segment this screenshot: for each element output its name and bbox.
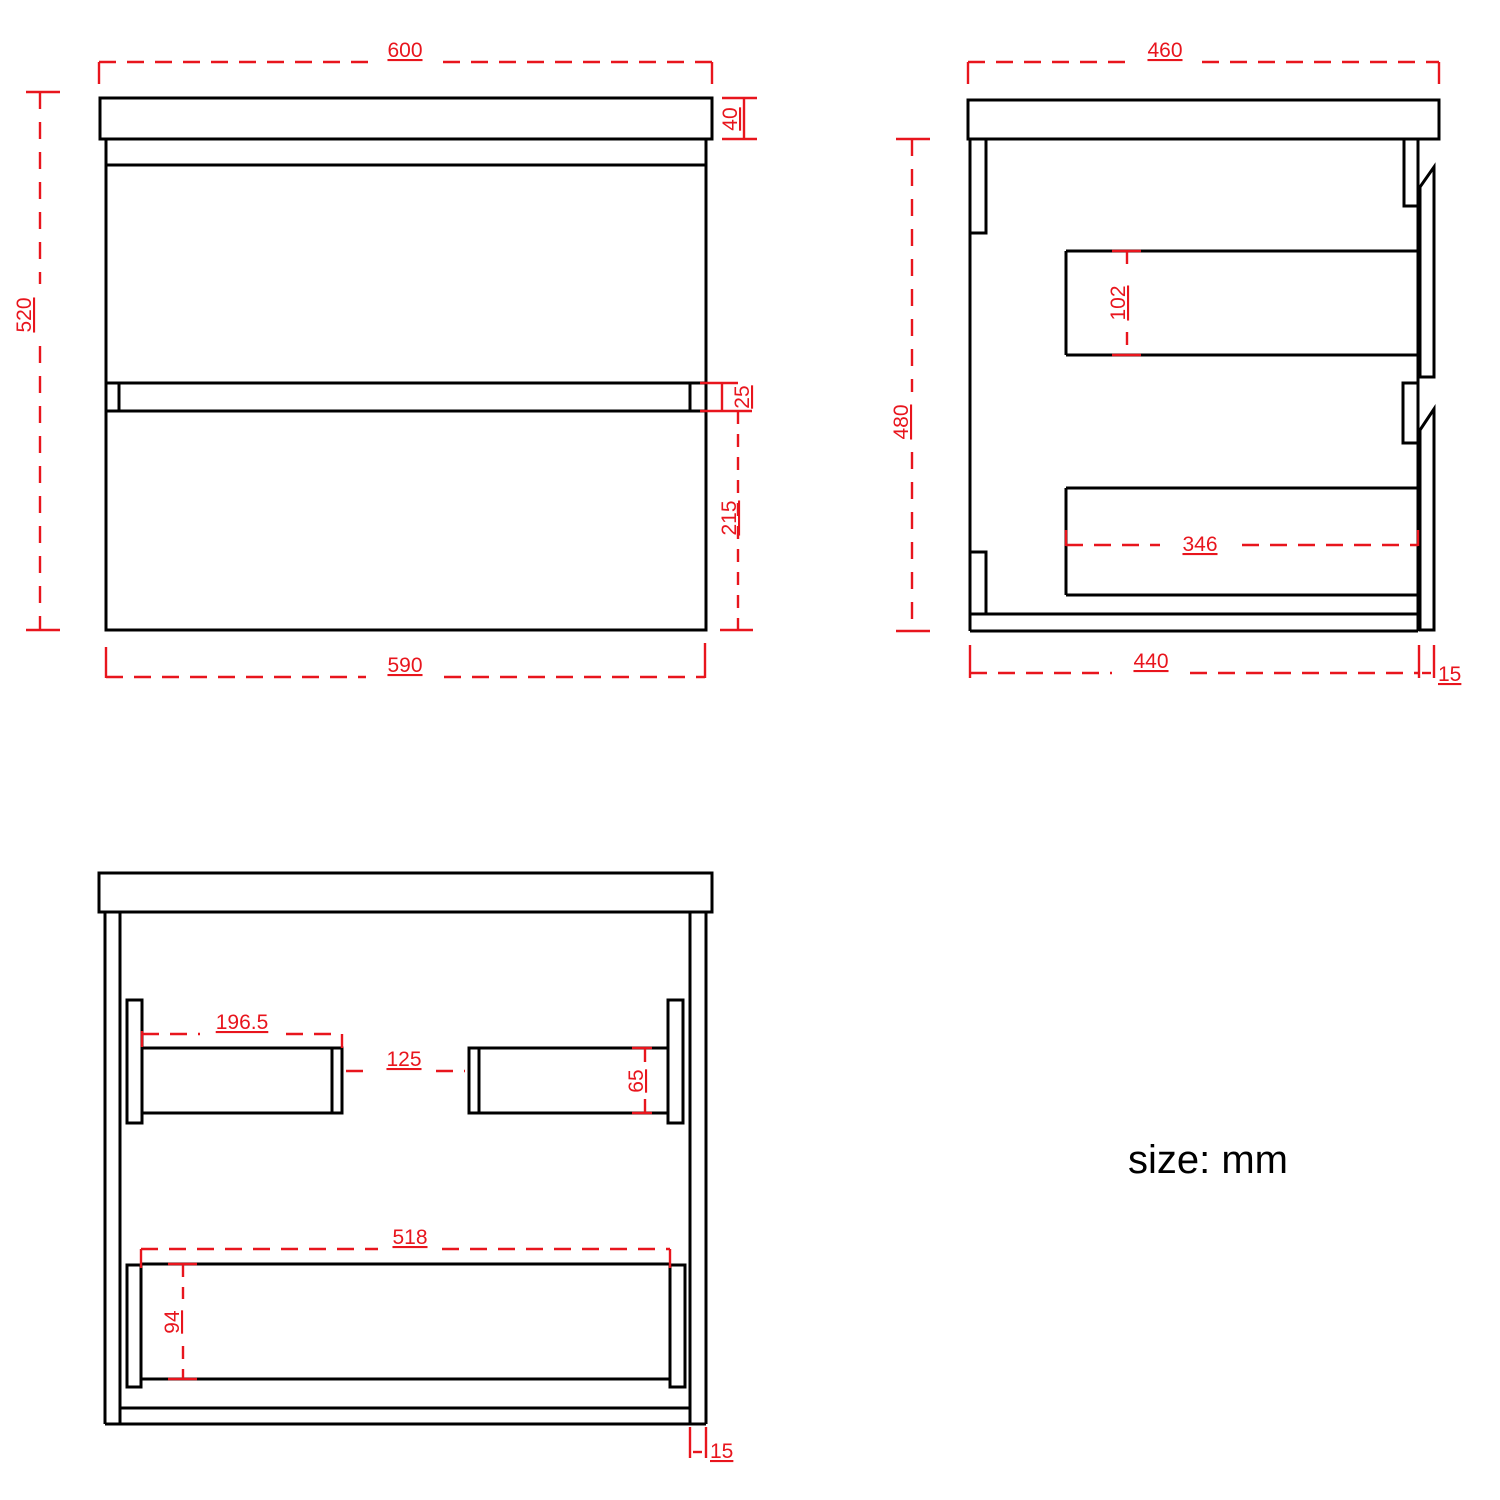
side-height-dimension bbox=[896, 139, 930, 631]
side-view: 460 480 102 346 bbox=[890, 39, 1461, 686]
dim-label-side-box-depth: 346 bbox=[1182, 533, 1217, 556]
dim-label-side-depth-bottom: 440 bbox=[1133, 650, 1168, 673]
side-top-hanging-bracket bbox=[970, 139, 986, 233]
dim-label-front-width-bottom: 590 bbox=[387, 654, 422, 677]
dim-label-front-drawer-height: 215 bbox=[718, 500, 741, 535]
side-depth-bottom-dimension bbox=[970, 645, 1419, 678]
side-upper-drawer-front-edge bbox=[1420, 167, 1434, 377]
side-top-rail-edge bbox=[1404, 139, 1418, 206]
rail-right-inner-cap bbox=[469, 1048, 479, 1113]
dim-label-rail-gap: 125 bbox=[386, 1048, 421, 1071]
rail-right-end-cap bbox=[668, 1000, 683, 1123]
side-box-depth-dimension bbox=[1066, 530, 1418, 546]
technical-drawing-page: 600 40 520 25 215 bbox=[0, 0, 1500, 1500]
dim-label-side-panel-thickness: 15 bbox=[1438, 663, 1461, 686]
side-bottom-hanging-bracket bbox=[970, 552, 986, 614]
wall-thickness-dimension bbox=[690, 1427, 706, 1458]
dim-label-front-height: 520 bbox=[13, 297, 36, 332]
dim-label-wall-thickness: 15 bbox=[710, 1440, 733, 1463]
side-panel-thickness-dimension bbox=[1422, 645, 1434, 678]
dim-label-rail-width: 196.5 bbox=[216, 1011, 269, 1034]
side-lower-drawer-front-edge bbox=[1420, 409, 1434, 630]
dim-label-side-upper-box-height: 102 bbox=[1107, 285, 1130, 320]
internal-view: 196.5 125 65 518 94 bbox=[99, 873, 733, 1463]
lower-box-right-cap bbox=[670, 1265, 685, 1387]
lower-box-left-cap bbox=[127, 1265, 141, 1387]
dim-label-front-top-thickness: 40 bbox=[719, 107, 742, 130]
front-view: 600 40 520 25 215 bbox=[13, 39, 757, 678]
dim-label-side-height: 480 bbox=[890, 404, 913, 439]
dim-label-rail-height: 65 bbox=[625, 1069, 648, 1092]
dim-label-lower-box-width: 518 bbox=[392, 1226, 427, 1249]
side-width-top-dimension bbox=[968, 62, 1439, 84]
internal-countertop-outline bbox=[99, 873, 712, 912]
dim-label-side-width-top: 460 bbox=[1147, 39, 1182, 62]
side-countertop-outline bbox=[968, 100, 1439, 139]
units-note: size: mm bbox=[1128, 1138, 1288, 1182]
dim-label-front-width-top: 600 bbox=[387, 39, 422, 62]
front-countertop-outline bbox=[100, 98, 712, 139]
dim-label-front-gap: 25 bbox=[731, 385, 754, 408]
front-height-dimension bbox=[26, 92, 60, 630]
rail-left-end-cap bbox=[127, 1000, 142, 1123]
dim-label-lower-box-height: 94 bbox=[161, 1310, 184, 1334]
front-width-top-dimension bbox=[99, 62, 712, 84]
rail-left-inner-cap bbox=[332, 1048, 342, 1113]
side-mid-rail-edge bbox=[1403, 383, 1418, 443]
vanity-dimension-drawing: 600 40 520 25 215 bbox=[0, 0, 1500, 1500]
